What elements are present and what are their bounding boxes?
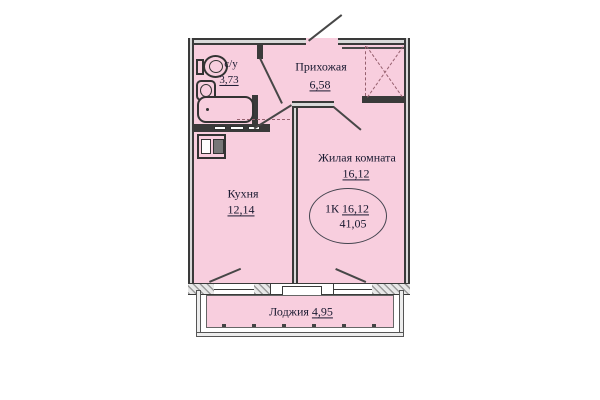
railing-post	[312, 324, 316, 327]
railing-post	[342, 324, 346, 327]
loggia-wall	[399, 290, 404, 337]
room-label-kitchen: Кухня	[227, 187, 258, 200]
apartment-type-label: 1К 16,12	[325, 202, 369, 215]
railing-post	[252, 324, 256, 327]
wall-hatched	[372, 283, 410, 295]
railing-post	[222, 324, 226, 327]
wall	[257, 45, 263, 59]
toilet-icon	[209, 60, 223, 73]
room-label-living: Жилая комната	[318, 151, 396, 164]
wall-hatched	[188, 283, 214, 295]
railing-post	[282, 324, 286, 327]
wall	[338, 38, 410, 45]
room-area-living: 16,12	[343, 167, 370, 180]
room-area-kitchen: 12,14	[228, 203, 255, 216]
apartment-total-area: 41,05	[340, 217, 367, 230]
wall	[292, 101, 334, 108]
railing-post	[372, 324, 376, 327]
wall	[362, 96, 404, 103]
wall	[188, 38, 194, 295]
wall	[342, 47, 404, 49]
loggia-wall	[196, 332, 404, 337]
wall	[404, 38, 410, 295]
bathtub-icon	[206, 108, 209, 111]
window	[214, 283, 254, 295]
counter-icon	[214, 126, 226, 130]
room-label-loggia: Лоджия 4,95	[269, 305, 333, 318]
room-area-hallway: 6,58	[310, 78, 331, 91]
wall	[292, 103, 298, 285]
floor-plan: с/у 3,73 Прихожая 6,58 Жилая комната 16,…	[0, 0, 600, 400]
loggia-wall	[196, 290, 201, 337]
room-area-bathroom: 3,73	[219, 74, 238, 86]
wall-hatched	[254, 283, 270, 295]
room-label-hallway: Прихожая	[295, 60, 346, 73]
room-label-bathroom: с/у	[224, 58, 237, 70]
wall	[188, 38, 306, 45]
counter-icon	[230, 126, 244, 130]
stove-icon	[201, 139, 211, 154]
wardrobe-icon	[365, 46, 366, 96]
stove-icon	[213, 139, 224, 154]
window	[334, 283, 372, 295]
